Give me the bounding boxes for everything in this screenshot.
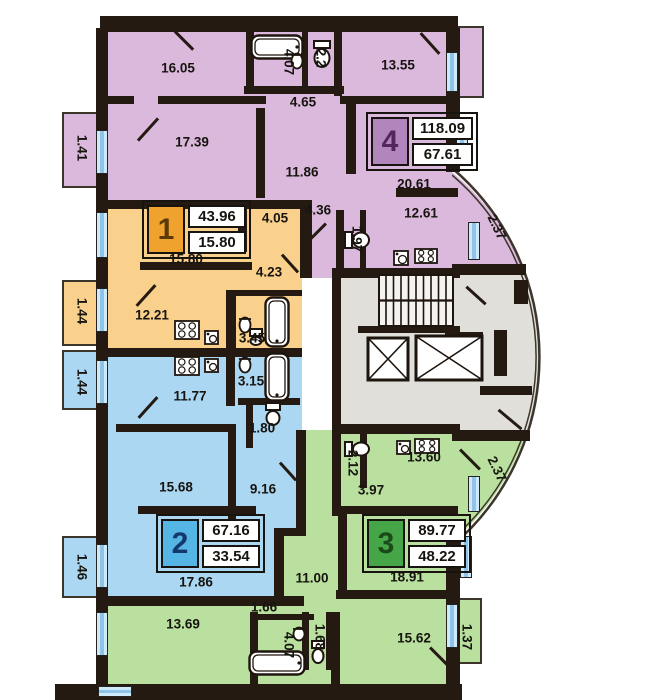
wall: [336, 210, 344, 268]
bathtub-icon: [248, 650, 306, 676]
wall: [452, 430, 530, 441]
badge-area-values: 43.9615.80: [188, 205, 246, 254]
apartment-3-badge: 389.7748.22: [362, 514, 471, 573]
wall: [346, 100, 356, 174]
room-area-label: 2.12: [346, 450, 361, 476]
stove-icon: [414, 248, 438, 264]
room-area-label: 17.39: [175, 135, 209, 150]
stairs-icon: [378, 274, 454, 327]
room-area-label: 15.62: [397, 631, 431, 646]
wall: [332, 430, 341, 516]
room-area-label: 13.60: [407, 450, 441, 465]
room-area-label: 1.37: [460, 624, 475, 650]
room-area-label: 4.65: [290, 95, 316, 110]
wall: [274, 532, 284, 602]
bath-sink-icon: [238, 356, 252, 374]
room-area-label: 1.41: [75, 135, 90, 161]
room-area-label: 4.36: [305, 203, 331, 218]
wall: [480, 386, 532, 395]
room-area-label: 3.97: [358, 483, 384, 498]
wall: [331, 612, 340, 684]
window-icon: [446, 52, 458, 92]
room-area-label: 15.68: [159, 480, 193, 495]
room-area-label: 12.21: [135, 308, 169, 323]
bathtub-icon: [264, 352, 290, 402]
wall: [158, 96, 266, 104]
window-icon: [96, 544, 108, 588]
total-area-value: 67.16: [202, 519, 260, 542]
room-area-label: 16.05: [161, 61, 195, 76]
wall: [336, 506, 458, 514]
room-area-label: 4.07: [282, 49, 297, 75]
window-icon: [96, 360, 108, 404]
apartment-number: 2: [161, 519, 199, 568]
wall: [340, 96, 458, 104]
room-area-label: 1.44: [75, 298, 90, 324]
window-icon: [446, 604, 458, 648]
room-area-label: 4.23: [256, 265, 282, 280]
room-area-label: 2.2: [314, 49, 329, 68]
wall: [226, 290, 236, 350]
room-area-label: 11.00: [295, 571, 328, 586]
stove-icon: [174, 356, 200, 376]
window-icon: [468, 476, 480, 512]
wall: [514, 280, 528, 304]
apartment-number: 3: [367, 519, 405, 568]
apartment-2-badge: 267.1633.54: [156, 514, 265, 573]
room-area-label: 1.46: [75, 554, 90, 580]
apartment-4-badge: 4118.0967.61: [366, 112, 478, 171]
elevator-icon: [414, 334, 484, 382]
badge-area-values: 89.7748.22: [408, 519, 466, 568]
kitchen-sink-icon: [204, 330, 219, 345]
wall: [332, 424, 460, 434]
apartment-number: 4: [371, 117, 409, 166]
window-icon: [98, 686, 132, 697]
wall: [336, 590, 458, 599]
room-area-label: 1.97: [350, 226, 365, 252]
apartment-1-badge: 143.9615.80: [142, 200, 251, 259]
living-area-value: 33.54: [202, 545, 260, 568]
kitchen-sink-icon: [204, 358, 219, 373]
badge-area-values: 67.1633.54: [202, 519, 260, 568]
badge-area-values: 118.0967.61: [412, 117, 473, 166]
wall: [108, 96, 134, 104]
wall: [338, 510, 347, 594]
wall: [116, 424, 234, 432]
window-icon: [96, 612, 108, 656]
room-area-label: 13.55: [381, 58, 415, 73]
stove-icon: [174, 320, 200, 340]
kitchen-sink-icon: [393, 250, 409, 266]
room-area-label: 1.44: [75, 369, 90, 395]
apartment-number: 1: [147, 205, 185, 254]
wall: [256, 108, 265, 198]
room-area-label: 3.45: [239, 331, 265, 346]
living-area-value: 15.80: [188, 231, 246, 254]
room-area-label: 20.61: [397, 177, 431, 192]
total-area-value: 118.09: [412, 117, 473, 140]
elevator-icon: [366, 336, 410, 382]
room-area-label: 9.16: [250, 482, 276, 497]
window-icon: [96, 130, 108, 174]
total-area-value: 43.96: [188, 205, 246, 228]
wall: [296, 430, 306, 534]
wall: [494, 330, 507, 376]
window-icon: [96, 288, 108, 332]
wall: [138, 506, 256, 514]
room-area-label: 1.68: [313, 624, 328, 650]
room-area-label: 12.61: [404, 206, 438, 221]
room-area-label: 17.86: [179, 575, 213, 590]
room-area-label: 1.80: [249, 421, 275, 436]
room-area-label: 3.15: [238, 374, 264, 389]
wall: [100, 16, 458, 32]
apartment-4-balcony: [458, 26, 484, 98]
wall: [332, 278, 341, 430]
living-area-value: 48.22: [408, 545, 466, 568]
wall: [244, 86, 344, 94]
living-area-value: 67.61: [412, 143, 473, 166]
bathtub-icon: [264, 296, 290, 348]
window-icon: [96, 212, 108, 258]
room-area-label: 13.69: [166, 617, 200, 632]
room-area-label: 4.07: [282, 632, 297, 658]
room-area-label: 1.66: [251, 600, 277, 615]
room-area-label: 11.77: [173, 389, 206, 404]
wall: [452, 264, 526, 275]
window-icon: [468, 222, 480, 260]
total-area-value: 89.77: [408, 519, 466, 542]
floor-plan: 4.0515.804.231.4412.213.45143.9615.801.4…: [0, 0, 649, 700]
room-area-label: 4.05: [262, 211, 288, 226]
room-area-label: 11.86: [285, 165, 318, 180]
wall: [226, 352, 235, 406]
